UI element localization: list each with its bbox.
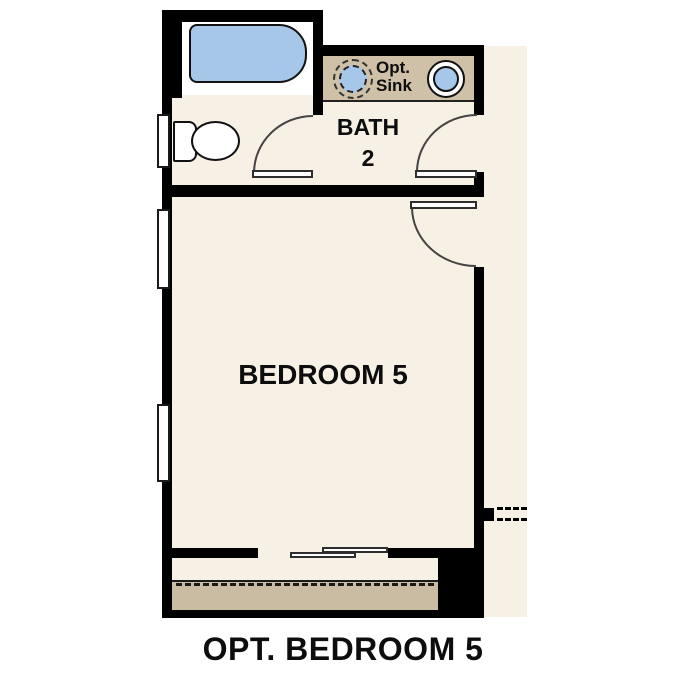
wall-break-dashes-bottom [497, 518, 527, 521]
wall-counter-top [313, 45, 484, 56]
left-rooms-floor [172, 10, 323, 610]
opt-sink-label: Opt. Sink [376, 59, 422, 95]
bath-label: BATH 2 [320, 112, 416, 174]
wall-right-upper [474, 45, 484, 115]
wall-bath-bedroom-divider [162, 185, 484, 197]
wall-bottom [162, 610, 484, 618]
sink-main-basin [433, 66, 459, 92]
bedroom-door-leaf [410, 201, 477, 209]
opt-sink-label-line2: Sink [376, 77, 422, 95]
bath-label-name: BATH [320, 112, 416, 143]
window-bedroom-lower [157, 404, 170, 482]
bath-door-leaf [415, 170, 477, 178]
wall-bottom-left-segment [162, 548, 258, 558]
toilet-bowl [191, 121, 240, 161]
bath-label-number: 2 [320, 143, 416, 174]
sink-optional-basin [339, 65, 367, 93]
patio-dashed-line [176, 583, 434, 586]
bypass-slider-panel-front [290, 552, 356, 558]
wall-left [162, 10, 172, 618]
plan-title: OPT. BEDROOM 5 [143, 632, 543, 666]
wall-break-nub [484, 508, 494, 521]
wall-corner-block [438, 548, 484, 617]
opt-sink-label-line1: Opt. [376, 59, 422, 77]
wall-top [162, 10, 323, 22]
window-bath [157, 114, 170, 168]
toilet-room-door-leaf [252, 170, 313, 178]
bedroom-label: BEDROOM 5 [175, 360, 471, 390]
window-bedroom-upper [157, 209, 170, 289]
bathtub [189, 24, 307, 83]
wall-toilet-bath-divider [313, 10, 323, 115]
floor-plan: Opt. Sink BATH 2 BEDROOM 5 OPT. BEDROOM … [0, 0, 687, 687]
wall-break-dashes-top [497, 507, 527, 510]
